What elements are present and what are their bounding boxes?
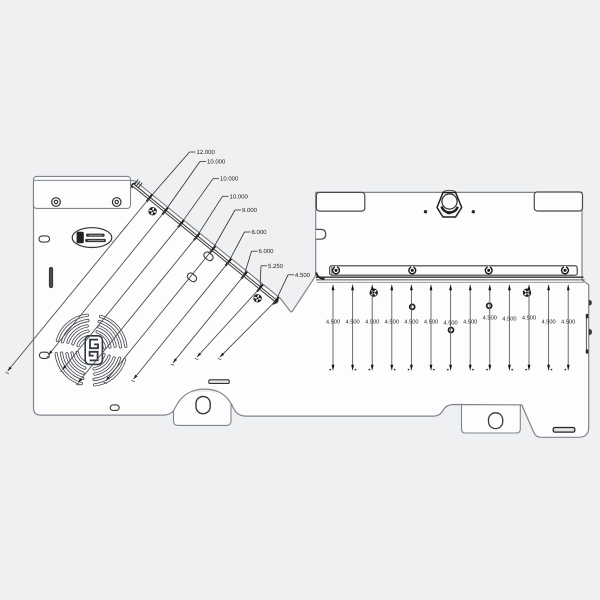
svg-text:4.500: 4.500 xyxy=(443,321,457,327)
svg-text:4.500: 4.500 xyxy=(502,317,516,323)
svg-text:5.250: 5.250 xyxy=(268,263,284,270)
svg-text:10.000: 10.000 xyxy=(207,159,226,166)
svg-text:4.500: 4.500 xyxy=(522,316,536,322)
svg-text:8.000: 8.000 xyxy=(252,229,268,236)
svg-text:4.500: 4.500 xyxy=(463,320,477,326)
svg-text:12.000: 12.000 xyxy=(197,149,216,156)
svg-text:4.500: 4.500 xyxy=(295,272,311,279)
svg-text:4.500: 4.500 xyxy=(326,320,340,326)
svg-text:10.000: 10.000 xyxy=(230,193,249,200)
svg-text:6.000: 6.000 xyxy=(259,248,275,255)
svg-text:10.000: 10.000 xyxy=(220,176,239,183)
svg-text:4.500: 4.500 xyxy=(541,320,555,326)
svg-text:4.500: 4.500 xyxy=(404,320,418,326)
svg-text:9.000: 9.000 xyxy=(242,207,258,214)
svg-text:4.500: 4.500 xyxy=(561,320,575,326)
svg-text:4.500: 4.500 xyxy=(424,320,438,326)
svg-text:4.500: 4.500 xyxy=(483,316,497,322)
svg-text:4.500: 4.500 xyxy=(365,320,379,326)
svg-text:4.500: 4.500 xyxy=(385,320,399,326)
svg-text:4.500: 4.500 xyxy=(345,320,359,326)
